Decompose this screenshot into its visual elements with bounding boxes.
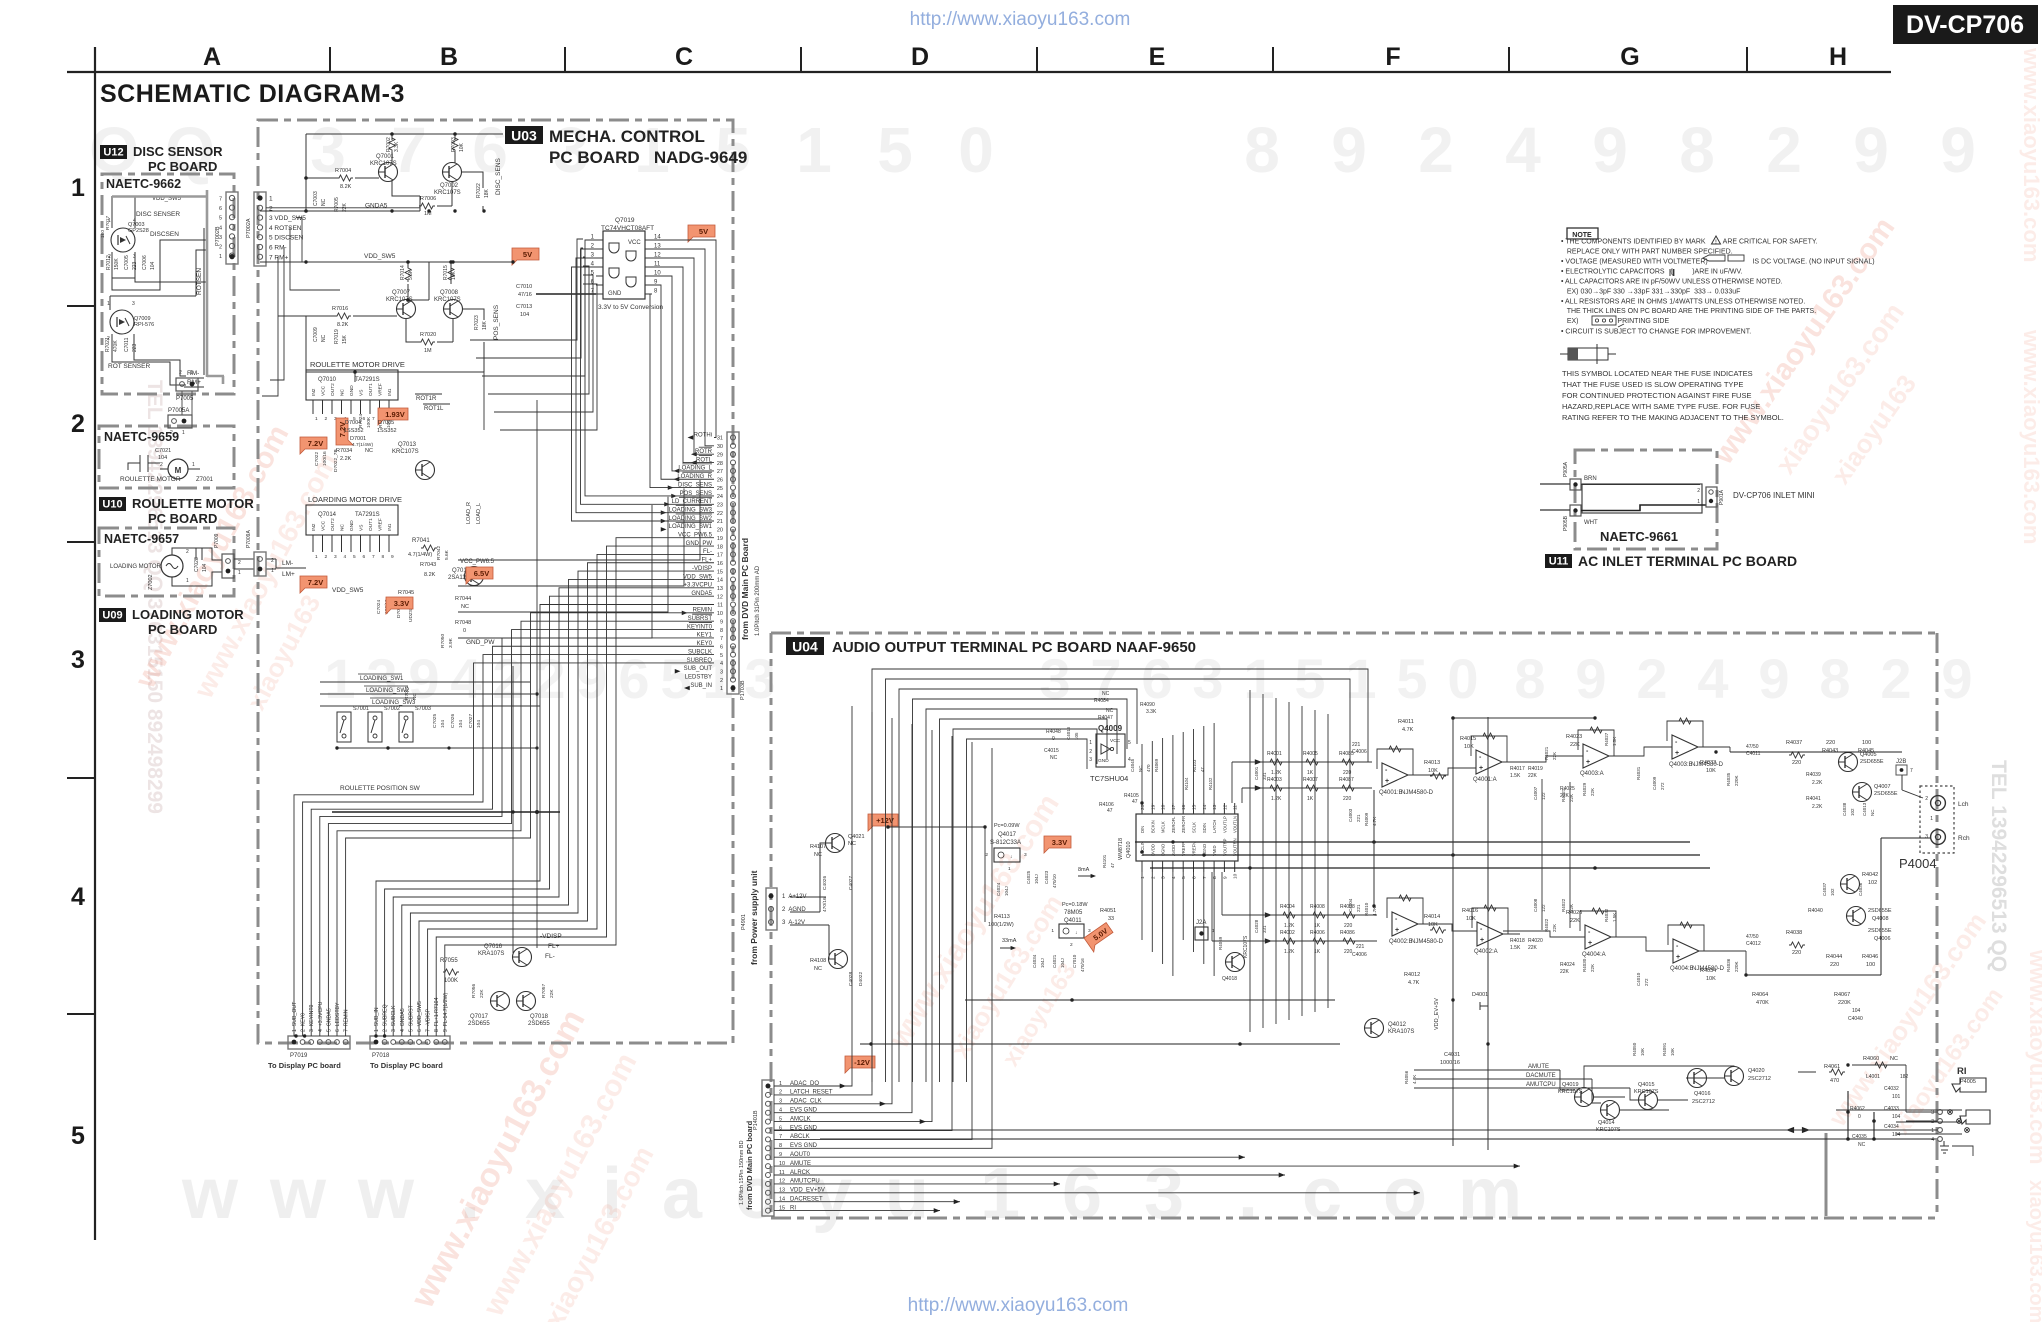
svg-text:Q4001:A: Q4001:A: [1473, 777, 1497, 783]
svg-text:OUT2: OUT2: [330, 383, 336, 396]
svg-text:P905A: P905A: [1563, 461, 1569, 477]
svg-text:0: 0: [1858, 1114, 1861, 1120]
svg-text:102: 102: [1830, 888, 1835, 896]
svg-text:18: 18: [717, 544, 723, 550]
svg-text:6: 6: [219, 206, 222, 212]
svg-text:P7005A: P7005A: [168, 408, 189, 414]
svg-text:U09: U09: [102, 610, 122, 622]
svg-text:3: 3: [1192, 647, 1223, 710]
svg-text:Q4017: Q4017: [998, 832, 1017, 838]
svg-text:R4037: R4037: [1786, 740, 1802, 746]
svg-text:R7019: R7019: [334, 329, 340, 344]
svg-text:1: 1: [182, 430, 185, 436]
svg-text:220: 220: [1344, 949, 1353, 955]
svg-text:4: 4: [344, 554, 347, 560]
svg-text:1.2K: 1.2K: [1284, 949, 1295, 955]
svg-text:9: 9: [1592, 114, 1628, 186]
svg-text:2SD655E: 2SD655E: [1860, 759, 1884, 765]
svg-text:LOADING_SW1: LOADING_SW1: [360, 676, 404, 682]
svg-text:D4022: D4022: [858, 972, 864, 986]
svg-text:R7012: R7012: [106, 255, 112, 270]
svg-text:NC: NC: [814, 966, 822, 972]
svg-text:2: 2: [720, 678, 723, 684]
svg-text:R4021: R4021: [1561, 788, 1566, 802]
svg-text:18: 18: [1161, 804, 1167, 810]
svg-text:GND: GND: [1098, 758, 1109, 764]
svg-text:DACMUTE: DACMUTE: [1526, 1073, 1556, 1079]
svg-text:R4024: R4024: [1560, 962, 1575, 968]
svg-text:C4016: C4016: [1066, 726, 1071, 740]
svg-text:1.5K: 1.5K: [1612, 737, 1617, 746]
svg-text:R4051: R4051: [1100, 908, 1116, 914]
svg-text:-VDISP: -VDISP: [540, 933, 562, 940]
svg-text:WM8718: WM8718: [1118, 838, 1124, 860]
svg-text:PC BOARD: PC BOARD: [148, 622, 217, 637]
svg-text:104: 104: [1892, 1132, 1901, 1138]
svg-text:R4008: R4008: [1310, 904, 1325, 910]
svg-text:R4022: R4022: [1544, 918, 1549, 932]
svg-text:DV-CP706 INLET MINI: DV-CP706 INLET MINI: [1733, 491, 1815, 500]
svg-text:100/16: 100/16: [322, 451, 328, 466]
svg-text:GND: GND: [349, 385, 355, 396]
svg-text:Q7017: Q7017: [470, 1014, 489, 1020]
svg-text:NJM4580-D: NJM4580-D: [1401, 790, 1434, 796]
svg-text:RI: RI: [1957, 1066, 1967, 1077]
svg-text:C7025: C7025: [432, 714, 438, 728]
svg-text:To Display PC board: To Display PC board: [268, 1061, 341, 1070]
svg-text:D7001: D7001: [350, 436, 366, 442]
svg-text:104: 104: [150, 261, 156, 270]
svg-text:LOAD_L: LOAD_L: [476, 503, 482, 524]
svg-text:3.9K: 3.9K: [448, 637, 454, 648]
svg-text:C4032: C4032: [1884, 1086, 1899, 1092]
svg-text:9: 9: [576, 647, 607, 710]
svg-text:NC: NC: [365, 448, 373, 454]
svg-text:R7043: R7043: [420, 562, 436, 568]
svg-text:7.2V: 7.2V: [308, 439, 323, 448]
svg-text:Q4011: Q4011: [1064, 918, 1082, 924]
svg-text:DV-CP706: DV-CP706: [1906, 11, 2024, 39]
svg-text:1.5K: 1.5K: [1510, 945, 1521, 951]
svg-text:R7017: R7017: [105, 216, 111, 230]
svg-text:7 -VDISP: 7 -VDISP: [426, 1008, 432, 1032]
svg-text:220: 220: [1830, 962, 1839, 968]
svg-text:R4036: R4036: [1726, 958, 1731, 972]
svg-text:220: 220: [1343, 796, 1352, 802]
svg-text:DVDD: DVDD: [1150, 844, 1155, 856]
svg-text:15K: 15K: [342, 334, 348, 344]
svg-text:R4067: R4067: [1834, 992, 1850, 998]
svg-text:R4011: R4011: [1398, 719, 1414, 725]
svg-text:BCKIN: BCKIN: [1150, 820, 1155, 833]
svg-text:C7005: C7005: [124, 255, 130, 270]
svg-text:4: 4: [450, 647, 481, 710]
svg-text:HAZARD,REPLACE WITH SAME TYPE: HAZARD,REPLACE WITH SAME TYPE FUSE. FOR …: [1562, 402, 1760, 411]
svg-text:P7002B: P7002B: [215, 226, 221, 246]
svg-text:MCLK: MCLK: [1161, 821, 1166, 833]
svg-text:104: 104: [1852, 1008, 1861, 1014]
svg-text:OUT2: OUT2: [330, 518, 336, 531]
svg-text:LEDSTBY: LEDSTBY: [685, 674, 712, 680]
svg-text:+: +: [1676, 954, 1680, 961]
svg-text:R4030: R4030: [1582, 958, 1587, 972]
svg-text:11: 11: [1233, 805, 1239, 810]
svg-text:GND: GND: [349, 520, 355, 531]
svg-text:3: 3: [1925, 834, 1928, 840]
svg-text:6 VDD_SW5: 6 VDD_SW5: [417, 1001, 423, 1032]
svg-text:FOR CONTINUED PROTECTION AGAIN: FOR CONTINUED PROTECTION AGAINST FIRE FU…: [1562, 391, 1751, 400]
svg-text:VOUTRP: VOUTRP: [1222, 838, 1227, 856]
svg-text:100K: 100K: [444, 978, 458, 984]
svg-text:www.xiaoyu163.com: www.xiaoyu163.com: [2025, 949, 2042, 1164]
svg-text:from Power supply unit: from Power supply unit: [749, 870, 759, 965]
svg-text:R7005: R7005: [334, 197, 340, 212]
svg-text:4.7K: 4.7K: [1372, 817, 1377, 826]
svg-text:VREF: VREF: [378, 518, 384, 531]
svg-text:C4008: C4008: [1533, 898, 1538, 912]
svg-text:R4018: R4018: [1510, 938, 1525, 944]
svg-text:22K: 22K: [1560, 969, 1570, 975]
svg-text:• ALL RESISTORS ARE IN OHMS 1/: • ALL RESISTORS ARE IN OHMS 1/4WATTS UNL…: [1561, 299, 1805, 306]
svg-text:7: 7: [219, 197, 222, 203]
svg-text:R4084: R4084: [1094, 698, 1109, 704]
svg-text:NC: NC: [340, 389, 346, 396]
svg-text:R4039: R4039: [1806, 772, 1821, 778]
svg-text:NC: NC: [1890, 1056, 1898, 1062]
svg-text:C4023: C4023: [1044, 870, 1049, 884]
svg-text:KRA107S: KRA107S: [478, 951, 504, 957]
svg-text:D7022_7B: D7022_7B: [333, 449, 339, 472]
svg-text:Q4009: Q4009: [1098, 724, 1123, 733]
svg-text:RM-: RM-: [187, 370, 199, 377]
svg-text:BRN: BRN: [1584, 476, 1597, 482]
svg-text:2 KEY0: 2 KEY0: [301, 1013, 307, 1032]
svg-text:10: 10: [1233, 873, 1239, 879]
svg-text:P7019: P7019: [290, 1053, 308, 1059]
svg-text:R4006: R4006: [1310, 930, 1325, 936]
svg-text:3.3V to 5V Conversion: 3.3V to 5V Conversion: [598, 304, 663, 311]
svg-text:KRC107S: KRC107S: [1634, 1089, 1659, 1095]
svg-text:1: 1: [315, 416, 318, 422]
svg-text:47/16: 47/16: [518, 292, 532, 298]
svg-text:Q4010: Q4010: [1126, 841, 1132, 858]
svg-text:220: 220: [1792, 760, 1801, 766]
svg-text:To Display PC board: To Display PC board: [370, 1061, 443, 1070]
svg-text:P4901: P4901: [741, 914, 747, 930]
svg-text:AMUTCPU: AMUTCPU: [1526, 1082, 1556, 1088]
svg-text:Q4005: Q4005: [1860, 752, 1877, 758]
svg-text:P7009: P7009: [214, 533, 220, 548]
svg-text:22K: 22K: [1528, 945, 1538, 951]
svg-text:15: 15: [717, 569, 723, 575]
svg-text:+: +: [1480, 937, 1484, 944]
svg-text:C4015: C4015: [1044, 748, 1059, 754]
svg-text:2: 2: [1925, 796, 1928, 802]
svg-text:28: 28: [717, 461, 723, 467]
svg-text:R7020: R7020: [420, 332, 436, 338]
svg-text:Q4003:B: Q4003:B: [1669, 762, 1693, 768]
svg-text:3.3K: 3.3K: [1146, 709, 1157, 715]
svg-text:470K: 470K: [113, 340, 119, 352]
svg-text:4: 4: [71, 883, 85, 911]
svg-text:LOADING_SW1: LOADING_SW1: [669, 524, 713, 530]
svg-text:2: 2: [1418, 114, 1454, 186]
svg-text:4.7(1/4W): 4.7(1/4W): [408, 552, 432, 558]
svg-text:2: 2: [534, 647, 565, 710]
svg-text:2SC2712: 2SC2712: [1748, 1076, 1771, 1082]
svg-text:2: 2: [1089, 749, 1092, 755]
svg-text:U11: U11: [1549, 556, 1569, 568]
svg-text:R4038: R4038: [1786, 930, 1802, 936]
svg-text:30: 30: [717, 444, 723, 450]
svg-text:1: 1: [1697, 499, 1700, 505]
svg-text:100: 100: [1862, 740, 1871, 746]
svg-text:102: 102: [1868, 880, 1877, 886]
svg-text:182: 182: [1900, 1074, 1909, 1080]
svg-text:7: 7: [1910, 768, 1913, 774]
svg-text:10K: 10K: [1706, 976, 1716, 982]
svg-text:4.7(1/4W): 4.7(1/4W): [352, 442, 373, 448]
svg-text:C7023: C7023: [194, 557, 200, 572]
svg-text:3.3V: 3.3V: [1052, 838, 1067, 847]
svg-text:C4026: C4026: [822, 876, 828, 890]
svg-text:REPLACE ONLY WITH PART NUMBER: REPLACE ONLY WITH PART NUMBER SPECIFIED.: [1561, 249, 1733, 256]
svg-text:R4035: R4035: [1726, 772, 1731, 786]
svg-text:R4013: R4013: [1424, 760, 1440, 766]
svg-text:Rch: Rch: [1958, 835, 1970, 842]
svg-text:C7021: C7021: [155, 448, 171, 454]
svg-text:G: G: [1620, 43, 1639, 71]
svg-text:KRC107S: KRC107S: [1243, 935, 1249, 958]
svg-text:ROTHi: ROTHi: [694, 432, 712, 438]
svg-text:U10: U10: [102, 499, 122, 511]
svg-text:R4091: R4091: [1662, 1042, 1667, 1056]
svg-text:Q7007: Q7007: [392, 290, 411, 296]
svg-text:TEL 13942296513 QQ: TEL 13942296513 QQ: [1987, 760, 2010, 972]
svg-text:C4028: C4028: [848, 972, 854, 986]
svg-text:LM+: LM+: [282, 571, 295, 578]
svg-text:C7010: C7010: [516, 284, 532, 290]
svg-text:GND_PW: GND_PW: [466, 639, 495, 646]
svg-text:DISCSEN: DISCSEN: [150, 231, 179, 238]
svg-text:IN1: IN1: [387, 388, 393, 396]
svg-text:100: 100: [1866, 962, 1875, 968]
svg-text:LATCH: LATCH: [1212, 820, 1217, 833]
svg-text:2: 2: [186, 549, 189, 555]
svg-text:R4022: R4022: [1561, 898, 1566, 912]
svg-text:R7016: R7016: [332, 306, 348, 312]
svg-text:R4010: R4010: [1364, 902, 1369, 916]
svg-text:1.2K: 1.2K: [1284, 923, 1295, 929]
svg-text:220: 220: [1344, 923, 1353, 929]
svg-text:8mA: 8mA: [1078, 867, 1090, 873]
svg-text:17: 17: [1171, 804, 1177, 810]
svg-text:150K: 150K: [114, 258, 120, 270]
svg-text:Q4020: Q4020: [1748, 1068, 1765, 1074]
svg-text:SCLK: SCLK: [1192, 822, 1197, 833]
svg-text:C4006: C4006: [1352, 952, 1367, 958]
svg-text:THE THICK LINES ON PC BOARD AR: THE THICK LINES ON PC BOARD ARE THE PRIN…: [1561, 308, 1816, 315]
svg-text:2: 2: [1697, 488, 1700, 494]
svg-text:R4113: R4113: [994, 914, 1010, 920]
svg-text:J2B: J2B: [1896, 759, 1906, 765]
svg-text:SDIN: SDIN: [1202, 823, 1207, 833]
svg-text:R4009: R4009: [1364, 812, 1369, 826]
svg-text:U04: U04: [792, 639, 818, 655]
svg-text:SCHEMATIC DIAGRAM-3: SCHEMATIC DIAGRAM-3: [100, 80, 405, 108]
svg-text:2 SUBREQ: 2 SUBREQ: [383, 1004, 389, 1032]
svg-text:U03: U03: [511, 128, 537, 144]
svg-text:221: 221: [1356, 904, 1361, 912]
svg-text:8: 8: [720, 628, 723, 634]
svg-text:1: 1: [315, 554, 318, 560]
svg-text:POS_SENS: POS_SENS: [493, 304, 500, 340]
svg-text:Q4001:B: Q4001:B: [1379, 790, 1403, 796]
svg-text:• ELECTROLYTIC CAPACITORS (: • ELECTROLYTIC CAPACITORS ( )ARE IN uF/W…: [1561, 269, 1743, 276]
svg-text:29: 29: [717, 452, 723, 458]
svg-text:R7055: R7055: [440, 958, 458, 964]
svg-text:w: w: [269, 1154, 327, 1234]
svg-text:3: 3: [1024, 852, 1027, 858]
svg-text:470/16: 470/16: [822, 897, 828, 912]
svg-text:5: 5: [353, 554, 356, 560]
svg-text:2: 2: [492, 647, 523, 710]
svg-text:+: +: [1675, 750, 1679, 757]
svg-text:P1703B: P1703B: [740, 680, 746, 700]
svg-text:10: 10: [717, 611, 723, 617]
svg-text:3: 3: [720, 670, 723, 676]
svg-text:R4032: R4032: [1604, 908, 1609, 922]
svg-text:5: 5: [1294, 647, 1325, 710]
svg-text:221: 221: [1356, 944, 1365, 950]
svg-text:22K: 22K: [1570, 918, 1580, 924]
svg-text:4: 4: [1697, 647, 1728, 710]
svg-text:22K: 22K: [1528, 773, 1538, 779]
svg-text:VS: VS: [359, 390, 365, 396]
svg-text:1 SUB_OUT: 1 SUB_OUT: [292, 1001, 298, 1032]
svg-text:R4108: R4108: [810, 958, 826, 964]
svg-text:8.2K: 8.2K: [337, 322, 349, 328]
svg-text:NC: NC: [321, 198, 327, 206]
svg-text:R7045: R7045: [398, 590, 414, 596]
svg-text:13: 13: [1212, 804, 1218, 810]
svg-text:NC: NC: [1050, 755, 1058, 761]
svg-text:6 LEDSTBY: 6 LEDSTBY: [335, 1002, 341, 1032]
svg-text:2: 2: [71, 410, 85, 438]
svg-text:C4040: C4040: [1848, 1016, 1863, 1022]
svg-text:R7004: R7004: [335, 168, 351, 174]
svg-text:6: 6: [1141, 647, 1172, 710]
svg-text:R4003: R4003: [1267, 777, 1282, 783]
svg-text:VCC: VCC: [1110, 738, 1121, 744]
svg-text:NAETC-9657: NAETC-9657: [104, 532, 179, 546]
svg-text:R4069: R4069: [1218, 936, 1223, 950]
svg-text:R7041: R7041: [412, 538, 430, 544]
svg-text:8: 8: [1819, 647, 1850, 710]
svg-text:14: 14: [717, 578, 723, 584]
svg-text:18K: 18K: [484, 188, 490, 198]
svg-text:R7048: R7048: [455, 620, 471, 626]
svg-text:S7001: S7001: [353, 706, 369, 712]
svg-text:31: 31: [717, 436, 723, 442]
svg-text:LOARDING MOTOR DRIVE: LOARDING MOTOR DRIVE: [308, 495, 402, 504]
svg-text:VREFP: VREFP: [1181, 842, 1186, 856]
svg-text:2SD655E: 2SD655E: [1868, 928, 1892, 934]
svg-text:0: 0: [463, 628, 466, 634]
svg-text:S7003: S7003: [415, 706, 431, 712]
svg-text:VOUTLP: VOUTLP: [1222, 816, 1227, 833]
svg-text:NC: NC: [340, 524, 346, 531]
svg-text:KRA107S: KRA107S: [1388, 1029, 1414, 1035]
svg-text:OUT1: OUT1: [368, 518, 374, 531]
svg-text:1: 1: [796, 114, 832, 186]
svg-text:1: 1: [324, 647, 355, 710]
svg-text:Q4021: Q4021: [848, 834, 865, 840]
svg-text:from DVD Main PC Board: from DVD Main PC Board: [740, 538, 750, 640]
svg-text:5: 5: [1128, 740, 1131, 746]
svg-text:2.2K: 2.2K: [340, 456, 352, 462]
svg-text:8: 8: [382, 554, 385, 560]
svg-text:220: 220: [1792, 950, 1801, 956]
svg-text:R4062: R4062: [1850, 1106, 1865, 1112]
svg-text:27: 27: [717, 469, 723, 475]
svg-text:3.3V: 3.3V: [394, 599, 409, 608]
svg-text:C7024: C7024: [376, 600, 382, 614]
svg-text:R4086: R4086: [1340, 930, 1355, 936]
svg-text:9 FL-14.7(1/2W): 9 FL-14.7(1/2W): [443, 993, 449, 1032]
svg-text:19: 19: [1150, 804, 1156, 810]
svg-text:2: 2: [1150, 876, 1156, 879]
svg-text:104: 104: [1892, 1114, 1901, 1120]
svg-text:ROULETTE MOTOR DRIVE: ROULETTE MOTOR DRIVE: [310, 360, 405, 369]
svg-text:C7010: C7010: [1072, 954, 1077, 968]
svg-text:R4012: R4012: [1404, 972, 1420, 978]
svg-text:VOUTRN: VOUTRN: [1233, 838, 1238, 856]
svg-text:2: 2: [1636, 647, 1667, 710]
svg-text:C4031: C4031: [1444, 1052, 1460, 1058]
svg-text:R4102: R4102: [1208, 777, 1213, 790]
svg-text:VDD_SW5: VDD_SW5: [332, 587, 364, 594]
svg-text:THIS SYMBOL LOCATED NEAR THE F: THIS SYMBOL LOCATED NEAR THE FUSE INDICA…: [1562, 369, 1753, 378]
svg-text:Q4003:A: Q4003:A: [1580, 771, 1604, 777]
svg-text:D7004: D7004: [345, 420, 361, 426]
svg-text:LM-: LM-: [282, 560, 293, 567]
svg-text:P4005: P4005: [1960, 1079, 1976, 1085]
svg-text:ROTSEN: ROTSEN: [196, 268, 203, 295]
svg-text:4: 4: [1931, 1137, 1934, 1143]
svg-text:Z7001: Z7001: [196, 477, 214, 483]
svg-text:9: 9: [1940, 114, 1976, 186]
svg-text:R4069: R4069: [1154, 758, 1159, 772]
svg-text:2: 2: [160, 462, 163, 468]
svg-text:9: 9: [391, 554, 394, 560]
svg-text:R4020: R4020: [1528, 938, 1543, 944]
svg-text:8 FL+1 R7104: 8 FL+1 R7104: [434, 997, 440, 1032]
svg-text:8: 8: [1679, 114, 1715, 186]
svg-text:6.5V: 6.5V: [474, 569, 489, 578]
svg-text:7: 7: [1202, 876, 1208, 879]
svg-text:7 RM+: 7 RM+: [269, 254, 289, 261]
svg-text:104: 104: [158, 455, 167, 461]
svg-text:R7042: R7042: [436, 546, 442, 560]
svg-text:NAETC-9662: NAETC-9662: [106, 177, 181, 191]
svg-text:47: 47: [1110, 862, 1115, 868]
svg-text:220: 220: [1343, 770, 1352, 776]
svg-text:2: 2: [1880, 647, 1911, 710]
svg-text:R4002: R4002: [1280, 930, 1295, 936]
svg-text:↓: ↓: [1075, 930, 1078, 936]
svg-text:MECHA. CONTROL: MECHA. CONTROL: [549, 127, 705, 146]
